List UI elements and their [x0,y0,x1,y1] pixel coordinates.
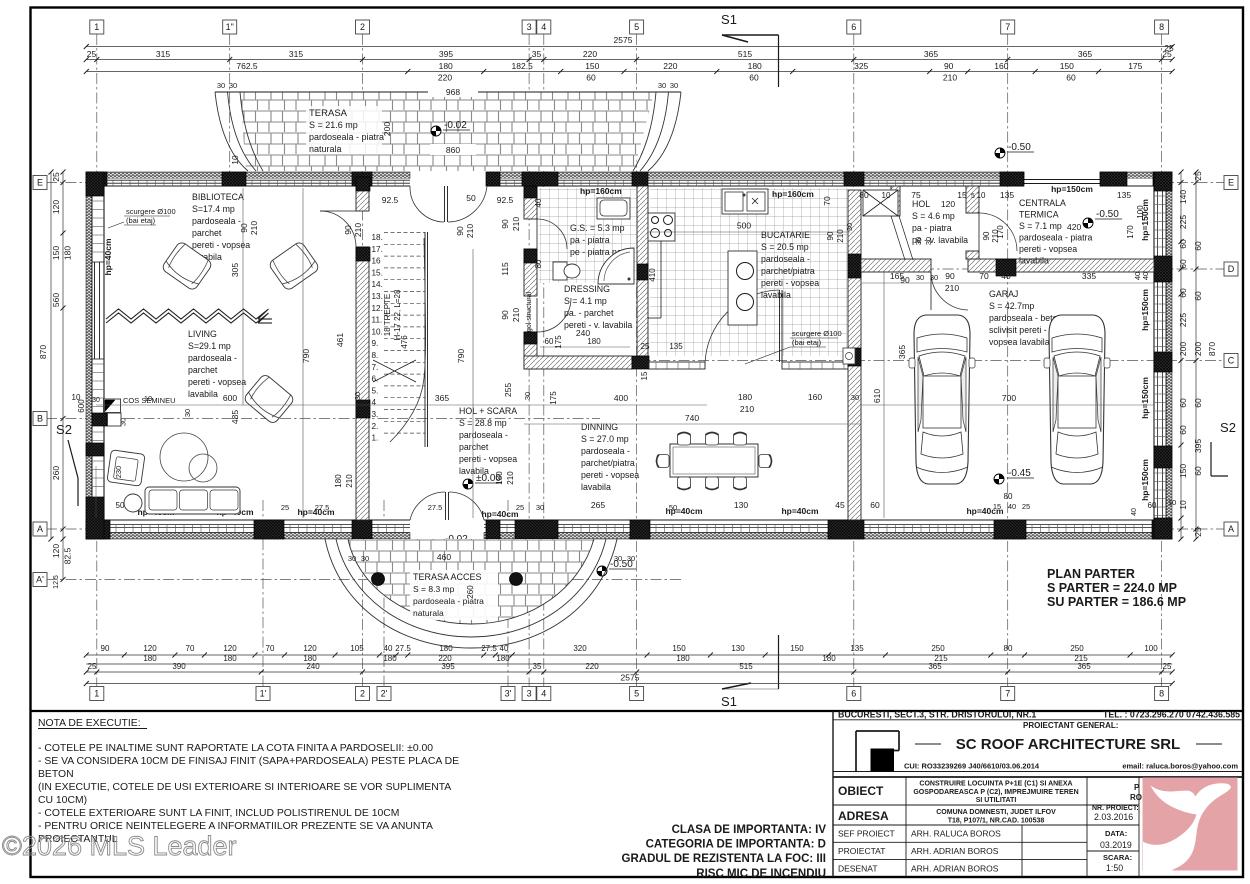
svg-text:naturala: naturala [309,144,342,154]
svg-text:hp=150cm: hp=150cm [1140,289,1150,331]
svg-text:30: 30 [914,237,923,245]
svg-text:3: 3 [527,22,532,32]
svg-text:7: 7 [1005,689,1010,699]
svg-text:scurgere Ø100: scurgere Ø100 [126,207,176,216]
svg-text:pereti - vopsea: pereti - vopsea [192,240,250,250]
svg-text:40: 40 [1141,272,1150,280]
svg-text:395: 395 [1193,439,1203,453]
svg-text:210: 210 [511,308,521,322]
svg-text:PROIECTANT GENERAL:: PROIECTANT GENERAL: [1023,721,1118,730]
svg-text:4: 4 [541,689,546,699]
svg-text:parchet/piatra: parchet/piatra [761,266,815,276]
svg-text:sclivisit pereti -: sclivisit pereti - [989,325,1047,335]
svg-text:30: 30 [930,273,938,282]
svg-text:- SE VA CONSIDERA 10CM DE FINI: - SE VA CONSIDERA 10CM DE FINISAJ FINIT … [38,756,459,767]
svg-text:S2: S2 [56,422,72,437]
svg-text:12.5: 12.5 [53,575,60,589]
svg-text:395: 395 [441,662,455,671]
svg-text:ADRESA: ADRESA [838,809,889,823]
svg-text:SEF PROIECT: SEF PROIECT [838,829,895,839]
svg-text:parchet: parchet [192,228,222,238]
svg-text:27.5: 27.5 [428,503,443,512]
svg-text:CENTRALA: CENTRALA [1019,198,1066,208]
svg-text:COMUNA DOMNESTI, JUDET ILFOV: COMUNA DOMNESTI, JUDET ILFOV [936,809,1056,816]
svg-text:15.: 15. [372,268,383,277]
svg-text:10: 10 [144,394,152,403]
svg-text:80: 80 [1004,644,1013,653]
svg-text:180: 180 [587,337,601,346]
svg-text:315: 315 [289,49,303,59]
svg-text:27.5: 27.5 [481,644,497,653]
svg-text:25: 25 [87,49,97,59]
svg-text:PROIECTAT: PROIECTAT [838,846,885,856]
svg-text:P: P [1134,783,1140,792]
svg-text:762.5: 762.5 [236,61,258,71]
svg-text:600: 600 [77,399,86,413]
svg-text:60: 60 [586,73,596,83]
svg-text:CATEGORIA DE IMPORTANTA: D: CATEGORIA DE IMPORTANTA: D [646,839,826,851]
svg-text:60: 60 [1193,466,1203,476]
svg-text:3.: 3. [372,410,379,419]
svg-text:180: 180 [63,246,73,260]
svg-text:BUCURESTI, SECT.3, STR. DRISTO: BUCURESTI, SECT.3, STR. DRISTORULUI, NR.… [838,710,1036,720]
svg-text:pa - piatra: pa - piatra [570,235,610,245]
svg-text:7.: 7. [372,363,379,372]
svg-text:60: 60 [1148,501,1157,510]
svg-text:1:50: 1:50 [1106,863,1123,873]
svg-text:175: 175 [554,335,563,349]
svg-text:8: 8 [1159,689,1164,699]
svg-text:pereti - vopsea: pereti - vopsea [1019,244,1077,254]
svg-text:lavabila: lavabila [459,466,489,476]
svg-text:S = 42.7mp: S = 42.7mp [989,301,1034,311]
svg-text:RO: RO [1130,793,1142,802]
svg-text:6: 6 [851,22,856,32]
svg-text:860: 860 [446,145,460,155]
svg-text:E: E [1228,178,1234,188]
svg-text:968: 968 [446,87,460,97]
svg-text:160: 160 [994,61,1008,71]
svg-text:120: 120 [303,644,317,653]
svg-text:pereti - vopsea: pereti - vopsea [459,454,517,464]
svg-text:18.: 18. [372,233,383,242]
svg-text:365: 365 [924,49,938,59]
svg-text:82.5: 82.5 [63,547,73,564]
svg-text:2575: 2575 [621,673,640,683]
svg-text:255: 255 [503,383,513,397]
svg-text:BIBLIOTECA: BIBLIOTECA [192,192,244,202]
svg-text:CUI: RO33239269 J40/6610/03: CUI: RO33239269 J40/6610/03.06.2014 [904,762,1040,771]
svg-text:30: 30 [217,81,225,90]
svg-text:parchet: parchet [459,442,489,452]
svg-text:60: 60 [1193,241,1203,251]
svg-text:C: C [1228,356,1235,366]
svg-text:210: 210 [945,283,959,293]
svg-text:(IN EXECUTIE, COTELE DE USI EX: (IN EXECUTIE, COTELE DE USI EXTERIOARE S… [38,782,451,793]
svg-text:12.: 12. [372,304,383,313]
svg-text:320: 320 [573,644,587,653]
svg-text:CLASA DE IMPORTANTA: IV: CLASA DE IMPORTANTA: IV [672,824,827,836]
svg-text:pardoseala -: pardoseala - [459,430,508,440]
svg-text:25: 25 [1022,502,1030,511]
svg-text:35: 35 [532,49,542,59]
svg-text:410: 410 [648,268,657,282]
svg-text:70: 70 [266,644,275,653]
svg-text:pereti - v. lavabila: pereti - v. lavabila [564,320,632,330]
svg-text:15: 15 [640,371,649,380]
svg-text:80: 80 [534,259,543,268]
svg-text:25: 25 [1193,527,1203,537]
svg-text:180: 180 [439,61,453,71]
svg-text:40: 40 [1131,508,1138,516]
svg-text:90: 90 [101,644,110,653]
svg-text:790: 790 [456,349,466,363]
svg-text:130: 130 [734,500,748,510]
svg-text:14.: 14. [372,280,383,289]
svg-text:175: 175 [1128,61,1142,71]
svg-text:-0.02: -0.02 [444,120,467,131]
svg-text:HOL: HOL [912,199,930,209]
svg-text:TEL. : 0723.296.270 0742.43: TEL. : 0723.296.270 0742.436.585 [1103,710,1240,720]
svg-text:100: 100 [1144,644,1158,653]
svg-text:105: 105 [350,644,364,653]
svg-text:60: 60 [1193,398,1203,408]
svg-text:25: 25 [281,503,289,512]
svg-text:180: 180 [334,474,343,488]
svg-text:220: 220 [663,61,677,71]
svg-text:- COTELE PE INALTIME SUNT RAPO: - COTELE PE INALTIME SUNT RAPORTATE LA C… [38,743,433,754]
svg-text:H-17 22, L=28: H-17 22, L=28 [393,289,402,340]
svg-text:S1: S1 [721,694,737,709]
svg-text:180: 180 [822,654,836,663]
svg-text:210: 210 [511,217,521,231]
svg-text:pardoseala -: pardoseala - [761,254,810,264]
svg-text:vopsea lavabila: vopsea lavabila [989,337,1050,347]
svg-text:A: A [1228,524,1234,534]
svg-text:25: 25 [1163,662,1172,671]
svg-text:160: 160 [808,392,822,402]
svg-text:60: 60 [545,337,554,346]
svg-text:60: 60 [1178,259,1188,269]
svg-text:pardoseala - piatra: pardoseala - piatra [309,132,384,142]
svg-text:30: 30 [924,237,933,245]
svg-text:SI UTILITATI: SI UTILITATI [976,797,1017,804]
svg-text:E: E [37,178,43,188]
svg-text:2575: 2575 [614,35,633,45]
svg-text:1: 1 [94,22,99,32]
svg-text:210: 210 [249,221,259,235]
svg-text:CONSTRUIRE LOCUINTA P+1E (C1): CONSTRUIRE LOCUINTA P+1E (C1) SI ANEXA [919,781,1072,788]
svg-text:40: 40 [384,644,393,653]
svg-text:182.5: 182.5 [512,61,534,71]
svg-text:60: 60 [1178,425,1188,435]
svg-text:S = 4.6 mp: S = 4.6 mp [912,211,955,221]
svg-text:80: 80 [859,190,869,200]
svg-text:870: 870 [38,345,48,359]
svg-text:DRESSING: DRESSING [564,284,610,294]
svg-text:(bai etaj): (bai etaj) [792,338,822,347]
svg-text:pardoseala -: pardoseala - [188,353,237,363]
svg-text:GRADUL DE REZISTENTA LA FOC: I: GRADUL DE REZISTENTA LA FOC: III [622,853,826,865]
svg-text:25: 25 [1162,49,1172,59]
svg-text:180: 180 [738,392,752,402]
svg-text:2: 2 [360,689,365,699]
svg-text:200: 200 [1193,342,1203,356]
svg-text:700: 700 [1002,393,1016,403]
svg-text:pa - piatra: pa - piatra [912,223,952,233]
svg-text:30: 30 [851,393,859,402]
svg-text:S = 21.6 mp: S = 21.6 mp [309,120,358,130]
svg-text:740: 740 [685,413,699,423]
svg-text:2.: 2. [372,422,379,431]
svg-text:DATA:: DATA: [1105,829,1127,838]
svg-text:150: 150 [672,644,686,653]
svg-text:265: 265 [591,500,605,510]
svg-text:210: 210 [506,471,515,485]
svg-text:BUCATARIE: BUCATARIE [761,230,810,240]
svg-text:210: 210 [465,224,475,238]
svg-text:30: 30 [183,409,192,417]
svg-text:parchet/piatra: parchet/piatra [581,458,635,468]
svg-text:60: 60 [1178,239,1188,249]
svg-text:30: 30 [361,554,369,563]
svg-text:03.2019: 03.2019 [1100,840,1132,850]
svg-text:180: 180 [496,654,510,663]
svg-text:GOSPODAREASCA P (C2), IMPREJMU: GOSPODAREASCA P (C2), IMPREJMUIRE TEREN [913,789,1078,796]
svg-text:60: 60 [1193,291,1203,301]
svg-text:G.S. = 5.3 mp: G.S. = 5.3 mp [570,223,625,233]
svg-text:15: 15 [993,502,1001,511]
svg-text:ARH. ADRIAN BOROS: ARH. ADRIAN BOROS [911,846,999,856]
svg-text:90: 90 [500,310,510,320]
svg-text:30: 30 [845,223,854,231]
svg-text:515: 515 [739,662,753,671]
svg-text:lavabila: lavabila [581,482,611,492]
svg-text:S PARTER = 224.0 MP: S PARTER = 224.0 MP [1047,581,1177,595]
svg-text:ARH. ADRIAN BOROS: ARH. ADRIAN BOROS [911,863,999,873]
svg-text:365: 365 [1078,49,1092,59]
svg-text:60: 60 [1066,73,1076,83]
svg-text:210: 210 [991,229,1000,243]
svg-text:3': 3' [505,689,512,699]
svg-text:SU PARTER = 186.6 MP: SU PARTER = 186.6 MP [1047,595,1186,609]
svg-text:B: B [37,414,43,424]
svg-text:BETON: BETON [38,769,74,780]
svg-text:40: 40 [534,198,543,207]
svg-text:90: 90 [343,225,353,235]
svg-text:7: 7 [1005,22,1010,32]
svg-text:140: 140 [1178,190,1188,204]
svg-text:90: 90 [826,231,835,240]
svg-text:10: 10 [230,155,240,165]
svg-text:27.5: 27.5 [315,503,330,512]
svg-text:476: 476 [400,335,409,349]
svg-text:ARH. RALUCA BOROS: ARH. RALUCA BOROS [911,829,1001,839]
svg-text:S = 28.8 mp: S = 28.8 mp [459,418,507,428]
svg-text:120: 120 [941,199,955,209]
svg-text:scurgere Ø100: scurgere Ø100 [792,329,842,338]
svg-text:10: 10 [1178,500,1188,510]
svg-text:10: 10 [977,191,986,200]
svg-text:260: 260 [51,466,61,480]
svg-text:11.: 11. [372,316,383,325]
svg-text:220: 220 [585,662,599,671]
svg-text:210: 210 [836,229,845,243]
svg-text:180: 180 [676,654,690,663]
svg-text:27.5: 27.5 [395,644,411,653]
svg-text:TERASA: TERASA [309,108,348,119]
svg-text:250: 250 [931,644,945,653]
svg-text:220: 220 [438,73,452,83]
svg-text:90: 90 [455,226,465,236]
svg-text:92.5: 92.5 [497,195,514,205]
svg-text:130: 130 [731,644,745,653]
svg-text:365: 365 [928,662,942,671]
svg-text:pereti - vopsea: pereti - vopsea [188,377,246,387]
svg-text:hp=150cm: hp=150cm [1140,199,1150,241]
svg-text:5: 5 [634,22,639,32]
svg-text:250: 250 [1070,644,1084,653]
svg-text:92.5: 92.5 [382,195,399,205]
svg-text:120: 120 [223,644,237,653]
svg-text:©2026 MLS Leader: ©2026 MLS Leader [2,831,237,861]
svg-text:S1: S1 [721,12,737,27]
svg-text:35: 35 [533,662,542,671]
svg-text:15: 15 [957,190,967,200]
svg-text:TERASA ACCES: TERASA ACCES [413,572,482,582]
svg-text:200: 200 [1178,342,1188,356]
svg-text:30: 30 [614,554,622,563]
svg-text:170: 170 [1126,225,1135,239]
svg-text:4: 4 [372,398,377,407]
svg-text:25: 25 [1193,171,1203,181]
svg-text:1: 1 [94,689,99,699]
svg-text:80: 80 [1004,492,1013,501]
svg-text:180: 180 [748,61,762,71]
svg-text:9.: 9. [372,339,379,348]
svg-text:8: 8 [1159,22,1164,32]
svg-text:30: 30 [523,392,532,400]
svg-text:16: 16 [372,257,382,266]
svg-text:pardoseala -: pardoseala - [581,446,630,456]
svg-text:70: 70 [186,644,195,653]
svg-text:(bai etaj): (bai etaj) [126,216,156,225]
svg-text:-0.50: -0.50 [1008,142,1031,153]
svg-text:560: 560 [51,293,61,307]
svg-text:30: 30 [536,503,544,512]
svg-text:120: 120 [51,544,61,558]
svg-text:RISC MIC DE INCENDIU: RISC MIC DE INCENDIU [696,868,826,880]
svg-text:hp=40cm: hp=40cm [781,506,819,516]
svg-text:D: D [1228,264,1235,274]
svg-text:8.: 8. [372,351,379,360]
svg-text:S = 8.3 mp: S = 8.3 mp [413,584,455,594]
svg-text:60: 60 [749,73,759,83]
svg-text:180: 180 [143,654,157,663]
svg-text:515: 515 [738,49,752,59]
svg-text:150: 150 [1178,464,1188,478]
svg-text:225: 225 [1178,313,1188,327]
svg-text:325: 325 [854,61,868,71]
svg-text:461: 461 [335,333,345,347]
svg-text:100: 100 [1136,205,1145,219]
svg-text:600: 600 [223,393,237,403]
svg-text:6: 6 [851,689,856,699]
svg-text:1': 1' [260,689,267,699]
svg-text:5: 5 [634,689,639,699]
svg-text:S = 7.1 mp: S = 7.1 mp [1019,221,1062,231]
svg-text:2: 2 [360,22,365,32]
svg-text:30: 30 [627,554,635,563]
svg-text:pereti - vopsea: pereti - vopsea [581,470,639,480]
svg-text:hp=160cm: hp=160cm [580,186,622,196]
svg-text:SC ROOF ARCHITECTURE SRL: SC ROOF ARCHITECTURE SRL [956,736,1180,753]
svg-text:90: 90 [239,223,249,233]
svg-text:LIVING: LIVING [188,329,217,339]
svg-text:hp=150cm: hp=150cm [1140,459,1150,501]
svg-text:lavabila: lavabila [188,389,218,399]
svg-text:CU 10CM): CU 10CM) [38,795,87,806]
svg-text:45: 45 [835,500,845,510]
svg-text:10: 10 [1168,498,1176,507]
svg-text:6.: 6. [372,375,379,384]
svg-text:hp=160cm: hp=160cm [772,189,814,199]
svg-text:-0.50: -0.50 [1096,209,1119,220]
svg-text:390: 390 [172,662,186,671]
svg-text:90: 90 [945,271,955,281]
svg-text:30: 30 [229,81,237,90]
svg-text:90: 90 [944,61,954,71]
svg-text:OBIECT: OBIECT [838,784,884,798]
svg-text:365: 365 [435,393,449,403]
svg-text:225: 225 [1178,215,1188,229]
svg-text:A': A' [36,575,44,585]
svg-text:180: 180 [383,654,397,663]
svg-text:DESENAT: DESENAT [838,863,878,873]
svg-text:790: 790 [301,349,311,363]
svg-text:gol structural: gol structural [526,292,533,333]
svg-text:lavabila: lavabila [1019,256,1049,266]
svg-text:PLAN PARTER: PLAN PARTER [1047,567,1135,581]
svg-text:10: 10 [882,191,891,200]
svg-text:150: 150 [790,644,804,653]
svg-text:315: 315 [156,49,170,59]
svg-text:180: 180 [223,654,237,663]
svg-text:10.: 10. [372,327,383,336]
svg-text:610: 610 [872,389,882,403]
svg-text:S=17.4 mp: S=17.4 mp [192,204,235,214]
svg-text:115: 115 [500,262,510,276]
svg-text:50: 50 [669,503,677,512]
svg-text:165: 165 [890,271,904,281]
svg-text:-0.45: -0.45 [1008,468,1031,479]
svg-text:30: 30 [353,392,362,400]
svg-text:T18, P107/1, NR.CAD. 100538: T18, P107/1, NR.CAD. 100538 [948,818,1045,825]
svg-text:4: 4 [541,22,546,32]
svg-text:lavabila: lavabila [761,290,791,300]
svg-text:260: 260 [466,585,475,599]
svg-text:1": 1" [226,22,234,32]
svg-text:365: 365 [897,345,907,359]
svg-text:150: 150 [1060,61,1074,71]
svg-text:180: 180 [495,471,504,485]
svg-text:GARAJ: GARAJ [989,289,1018,299]
svg-text:S=29.1 mp: S=29.1 mp [188,341,231,351]
svg-text:S = 27.0 mp: S = 27.0 mp [581,434,629,444]
svg-text:70: 70 [979,271,989,281]
svg-text:150: 150 [585,61,599,71]
svg-text:305: 305 [230,263,240,277]
